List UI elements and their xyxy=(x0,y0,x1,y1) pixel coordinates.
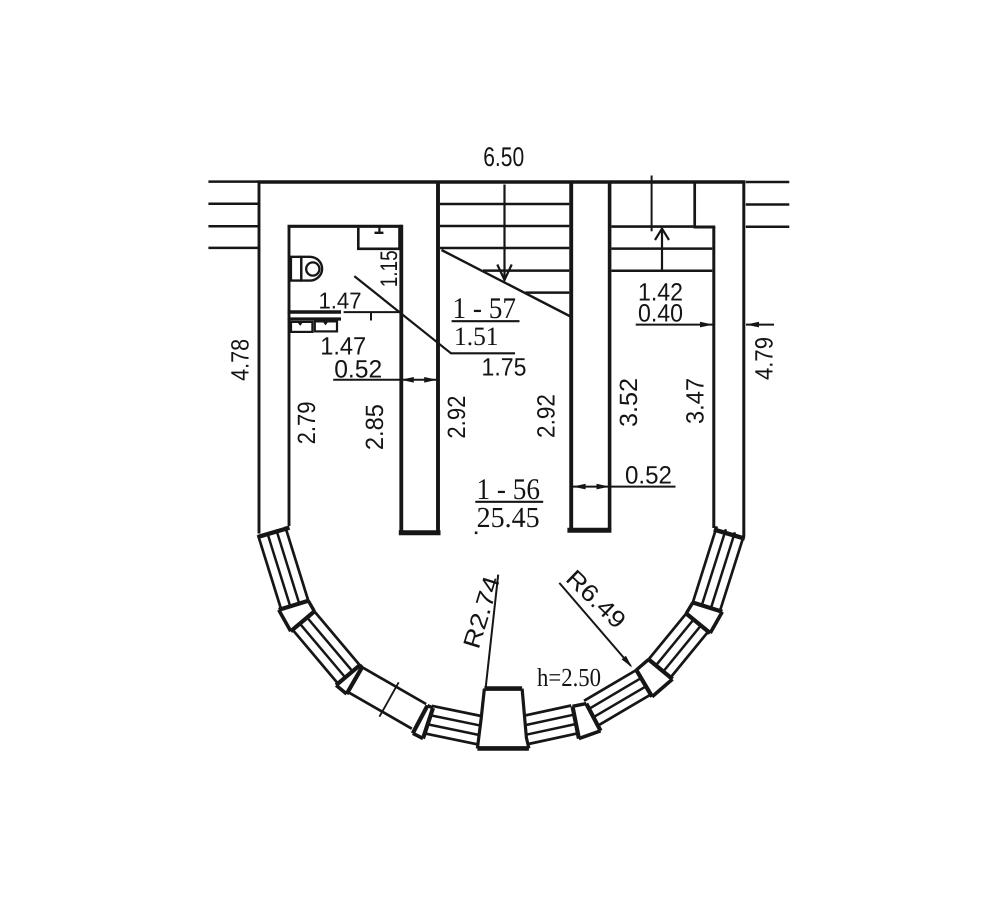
svg-text:1.51: 1.51 xyxy=(454,321,499,351)
svg-text:2.85: 2.85 xyxy=(361,404,389,450)
svg-text:4.78: 4.78 xyxy=(227,339,255,381)
svg-text:4.79: 4.79 xyxy=(751,337,779,380)
svg-text:2.79: 2.79 xyxy=(293,401,321,444)
svg-text:0.52: 0.52 xyxy=(625,462,672,490)
svg-text:1.75: 1.75 xyxy=(482,353,527,381)
svg-text:3.52: 3.52 xyxy=(615,378,643,427)
svg-text:h=2.50: h=2.50 xyxy=(537,663,601,692)
svg-text:6.50: 6.50 xyxy=(483,142,524,172)
svg-text:2.92: 2.92 xyxy=(533,394,561,438)
svg-text:1.15: 1.15 xyxy=(376,250,403,287)
svg-text:2.92: 2.92 xyxy=(443,396,471,439)
svg-text:0.40: 0.40 xyxy=(638,300,683,328)
svg-text:3.47: 3.47 xyxy=(682,378,710,424)
svg-text:1.47: 1.47 xyxy=(319,288,362,314)
svg-text:25.45: 25.45 xyxy=(477,502,540,534)
